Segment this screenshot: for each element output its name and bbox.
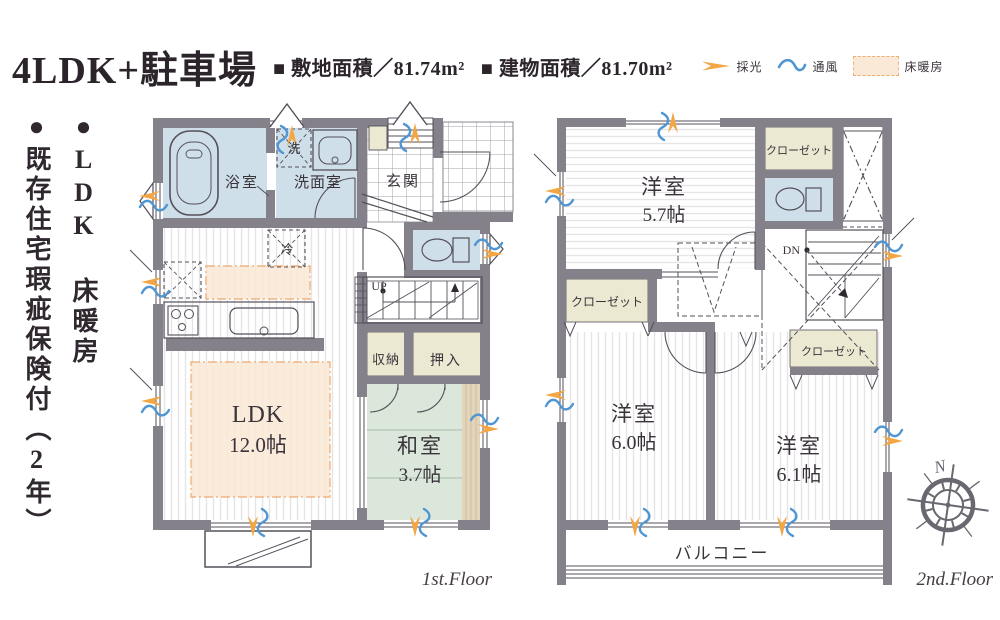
floorplan-page: 4LDK+駐車場 ■ 敷地面積／81.74m² ■ 建物面積／81.70m² 採… <box>0 0 1000 620</box>
western-room-c-label: 洋室 <box>776 434 822 458</box>
western-room-a-size-label: 5.7帖 <box>643 204 686 226</box>
japanese-room-size-label: 3.7帖 <box>399 464 442 486</box>
western-room-c-size-label: 6.1帖 <box>777 463 822 486</box>
floor1-plan: 浴室 洗 洗面室 玄関 冷 UP 収納 押入 LDK 12.0帖 和室 3.7帖… <box>130 102 513 590</box>
storage-label: 収納 <box>372 352 400 367</box>
closet-b-label: クローゼット <box>571 295 643 309</box>
balcony-railing <box>566 566 883 578</box>
western-room-b-size-label: 6.0帖 <box>612 431 657 454</box>
refrigerator-label: 冷 <box>280 242 293 257</box>
ldk-label: LDK <box>232 402 284 428</box>
japanese-room-label: 和室 <box>397 434 443 458</box>
oshiire-label: 押入 <box>430 353 462 369</box>
stairs-2f <box>804 230 883 320</box>
balcony-label: バルコニー <box>675 544 770 563</box>
sliding-door-2f <box>662 272 718 277</box>
floorplans-svg: 浴室 洗 洗面室 玄関 冷 UP 収納 押入 LDK 12.0帖 和室 3.7帖… <box>0 0 1000 620</box>
compass-rose: N <box>902 456 995 552</box>
stairs-down-label: DN <box>783 243 801 257</box>
stairs-up-label: UP <box>371 279 387 293</box>
ldk-size-label: 12.0帖 <box>229 433 287 457</box>
closet-c-label: クローゼット <box>801 345 867 358</box>
washroom-label: 洗面室 <box>294 174 342 191</box>
deck <box>205 531 311 567</box>
window-leader-lines-1f <box>130 250 152 390</box>
western-room-b-label: 洋室 <box>611 402 657 426</box>
floor1-caption: 1st.Floor <box>422 569 493 590</box>
bathroom-label: 浴室 <box>225 174 259 191</box>
floor2-caption: 2nd.Floor <box>916 569 993 590</box>
western-room-a-label: 洋室 <box>641 175 687 199</box>
closet-a-label: クローゼット <box>766 144 832 157</box>
compass-north-label: N <box>931 456 949 477</box>
laundry-label: 洗 <box>287 141 300 156</box>
entrance-label: 玄関 <box>386 173 420 190</box>
